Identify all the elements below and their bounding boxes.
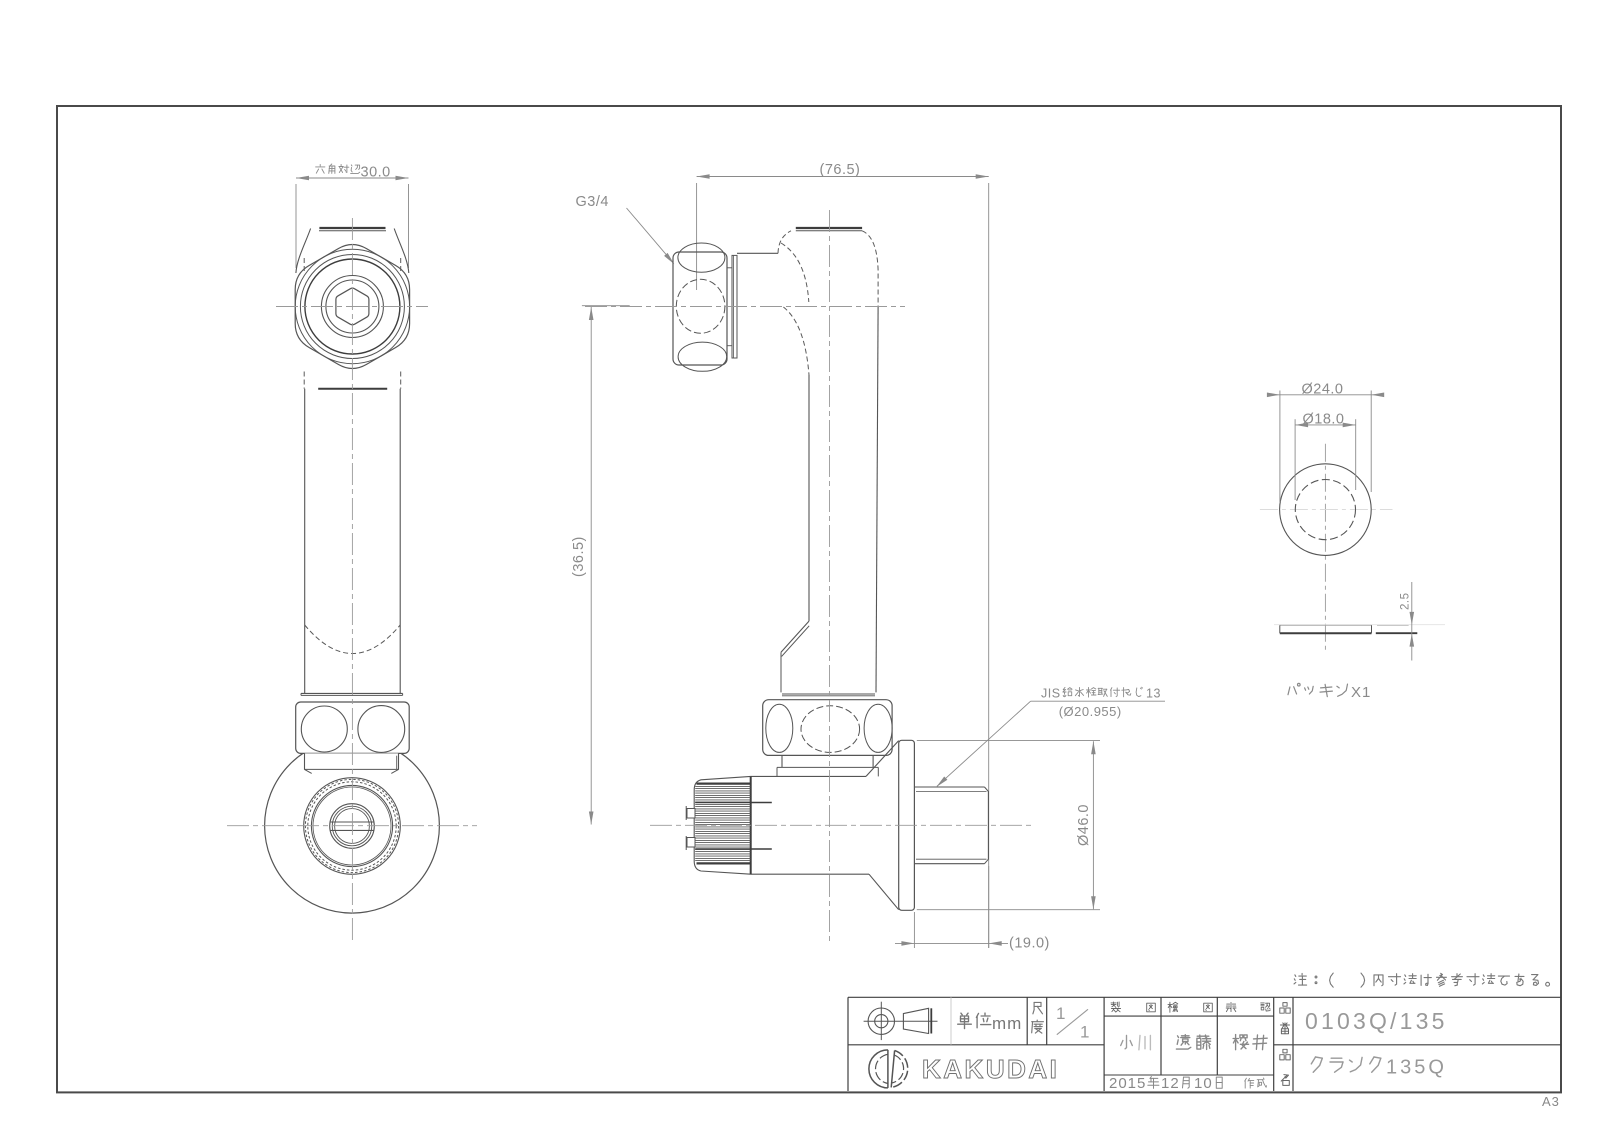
svg-text:(36.5): (36.5): [571, 536, 587, 577]
svg-text:mm: mm: [992, 1014, 1022, 1033]
svg-text:2.5: 2.5: [1400, 593, 1412, 611]
svg-text:(Ø20.955): (Ø20.955): [1059, 704, 1122, 719]
svg-text:13: 13: [1146, 687, 1161, 701]
svg-text:1: 1: [1080, 1023, 1089, 1042]
svg-text:135Q: 135Q: [1386, 1057, 1447, 1079]
svg-text:(76.5): (76.5): [820, 162, 861, 178]
svg-text:A3: A3: [1542, 1094, 1560, 1109]
svg-text:(19.0): (19.0): [1009, 936, 1050, 952]
svg-text:12: 12: [1161, 1075, 1180, 1092]
svg-text:X1: X1: [1351, 684, 1371, 701]
svg-text:10: 10: [1194, 1075, 1213, 1092]
svg-text:2015: 2015: [1109, 1075, 1146, 1092]
svg-text:JIS: JIS: [1041, 687, 1061, 701]
svg-text:G3/4: G3/4: [576, 194, 609, 210]
svg-text:KAKUDAI: KAKUDAI: [922, 1054, 1059, 1084]
svg-text:Ø46.0: Ø46.0: [1076, 804, 1092, 846]
svg-text:0103Q/135: 0103Q/135: [1305, 1008, 1448, 1034]
svg-text:1: 1: [1056, 1004, 1065, 1023]
